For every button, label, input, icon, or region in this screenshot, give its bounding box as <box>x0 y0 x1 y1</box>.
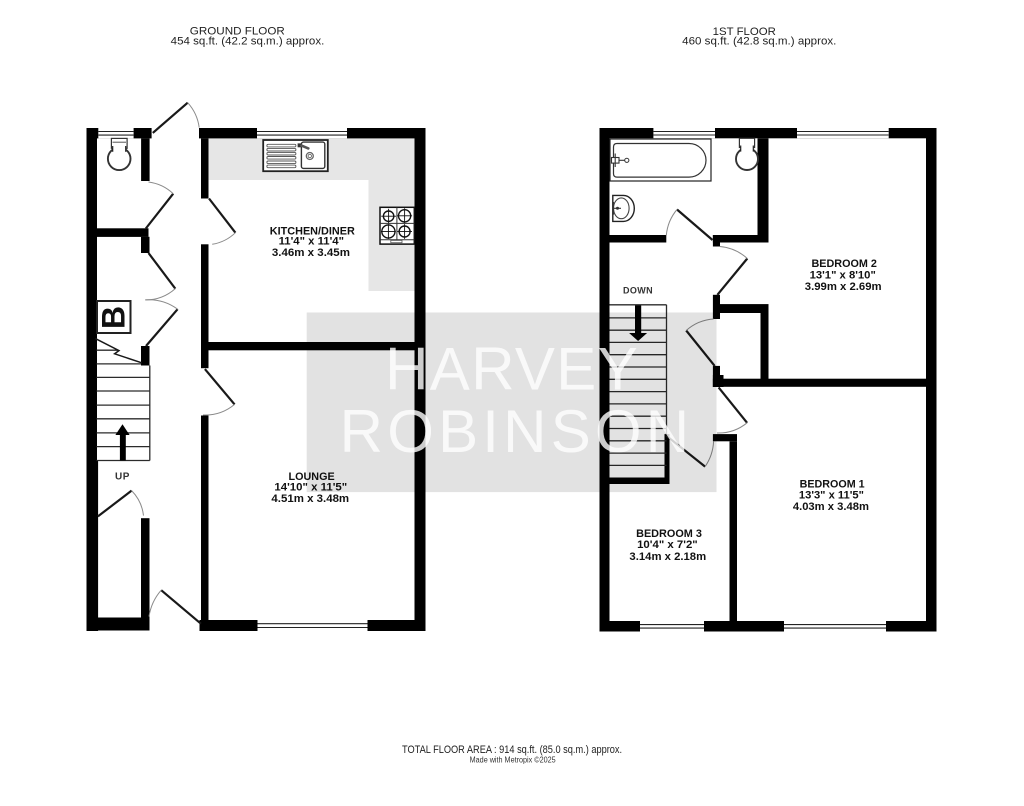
svg-text:460 sq.ft. (42.8 sq.m.) approx: 460 sq.ft. (42.8 sq.m.) approx. <box>682 36 836 48</box>
svg-text:3.99m x 2.69m: 3.99m x 2.69m <box>805 281 882 293</box>
svg-text:Made with Metropix ©2025: Made with Metropix ©2025 <box>470 756 556 765</box>
svg-text:11'4" x 11'4": 11'4" x 11'4" <box>279 235 344 247</box>
svg-text:UP: UP <box>115 472 130 483</box>
svg-text:B: B <box>96 306 132 329</box>
svg-text:BEDROOM 1: BEDROOM 1 <box>800 479 865 491</box>
svg-text:ROBINSON: ROBINSON <box>340 398 694 465</box>
svg-text:BEDROOM 2: BEDROOM 2 <box>812 258 877 270</box>
svg-text:HARVEY: HARVEY <box>385 336 639 403</box>
svg-text:TOTAL FLOOR AREA : 914 sq.ft.: TOTAL FLOOR AREA : 914 sq.ft. (85.0 sq.m… <box>402 744 622 756</box>
svg-text:10'4" x 7'2": 10'4" x 7'2" <box>637 539 698 551</box>
svg-text:DOWN: DOWN <box>623 285 653 295</box>
svg-text:13'3" x 11'5": 13'3" x 11'5" <box>799 490 864 502</box>
svg-text:13'1" x 8'10": 13'1" x 8'10" <box>810 269 876 281</box>
svg-text:454 sq.ft. (42.2 sq.m.) approx: 454 sq.ft. (42.2 sq.m.) approx. <box>171 36 325 48</box>
svg-text:4.03m x 3.48m: 4.03m x 3.48m <box>793 501 869 513</box>
svg-text:4.51m x 3.48m: 4.51m x 3.48m <box>271 493 349 505</box>
svg-text:3.46m x 3.45m: 3.46m x 3.45m <box>272 247 350 259</box>
svg-text:3.14m x 2.18m: 3.14m x 2.18m <box>629 551 706 563</box>
